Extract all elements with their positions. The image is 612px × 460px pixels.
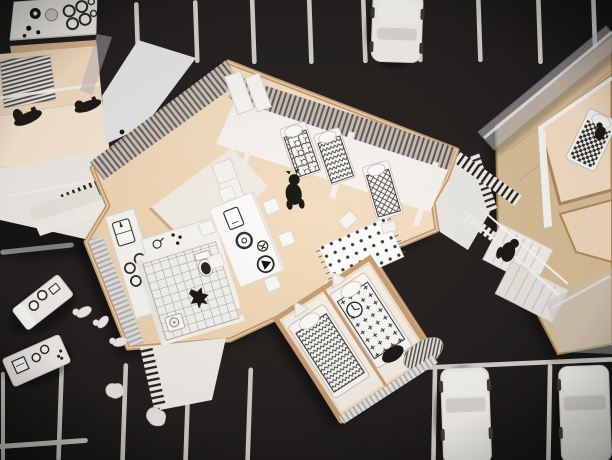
scene-svg bbox=[0, 0, 612, 460]
photo-vignette bbox=[0, 0, 612, 460]
model-photo bbox=[0, 0, 612, 460]
